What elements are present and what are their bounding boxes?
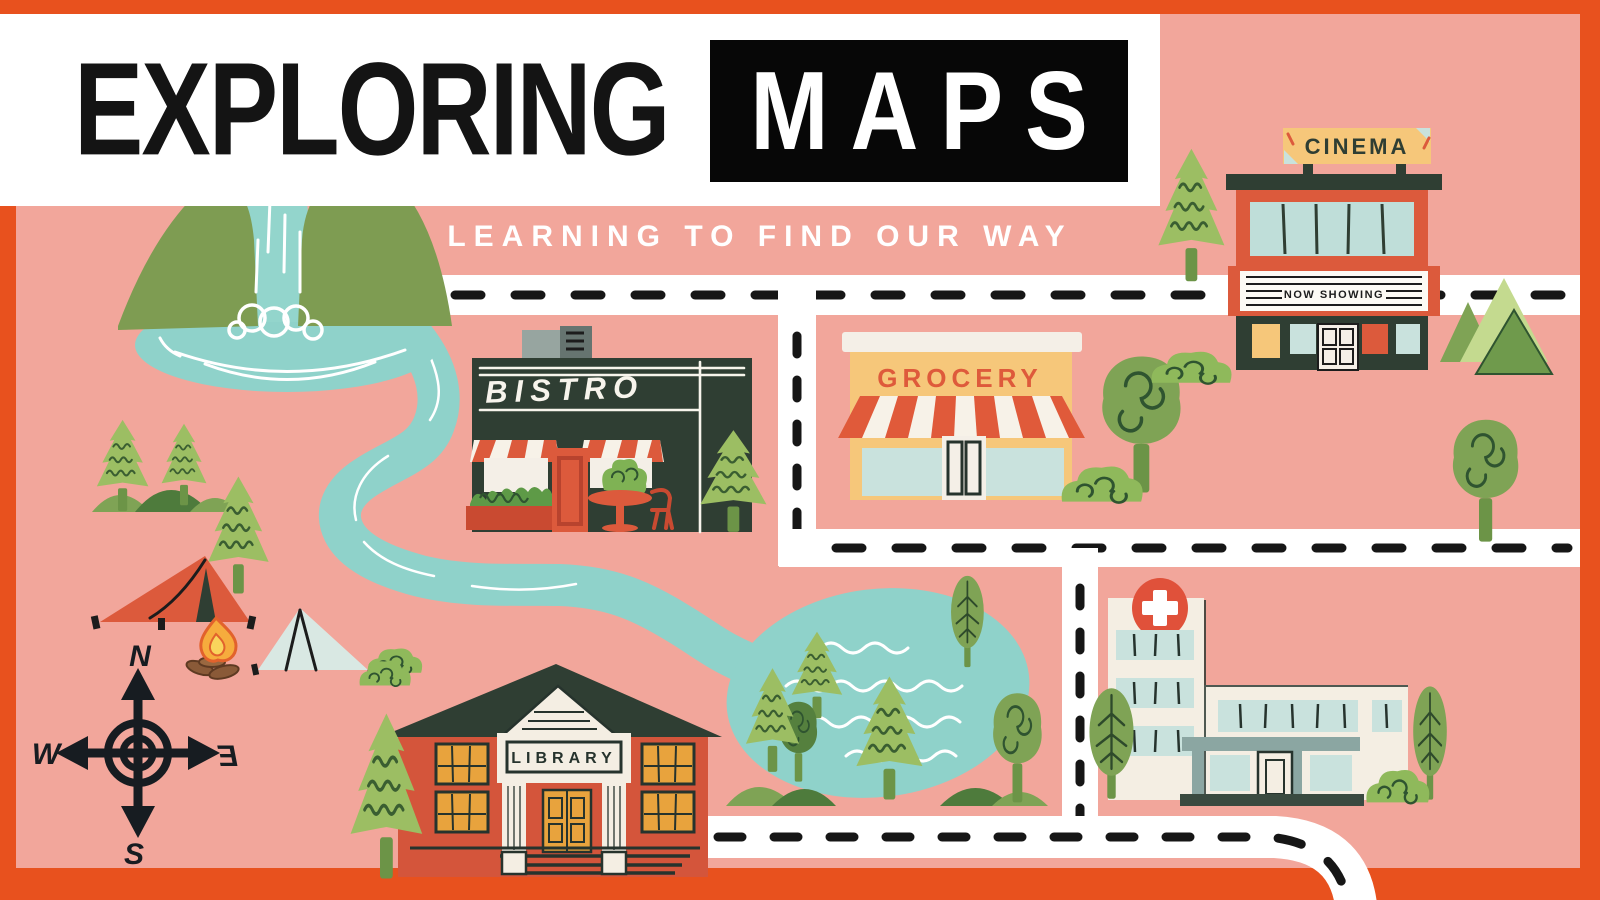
hospital-cross-icon bbox=[1132, 578, 1188, 638]
bistro-sign: BISTRO bbox=[485, 369, 645, 410]
exploring-maps-poster: N W E S BISTRO bbox=[0, 0, 1600, 900]
hospital-canopy bbox=[1182, 737, 1360, 751]
library-sign: LIBRARY bbox=[511, 750, 617, 767]
grocery-sign: GROCERY bbox=[877, 363, 1043, 393]
poster-title: EXPLORING bbox=[74, 34, 669, 185]
cinema-marquee-text: NOW SHOWING bbox=[1284, 289, 1384, 301]
cinema-sign: CINEMA bbox=[1305, 134, 1410, 159]
poster-subtitle: LEARNING TO FIND OUR WAY bbox=[420, 220, 1100, 254]
compass-label-south: S bbox=[124, 838, 144, 871]
compass-label-north: N bbox=[129, 640, 152, 673]
poster-title-highlight: MAPS bbox=[728, 47, 1110, 174]
title-highlight-box: MAPS bbox=[710, 40, 1128, 182]
compass-label-west: W bbox=[32, 738, 63, 771]
hospital-door bbox=[1258, 752, 1292, 798]
compass-label-east: E bbox=[217, 740, 238, 773]
